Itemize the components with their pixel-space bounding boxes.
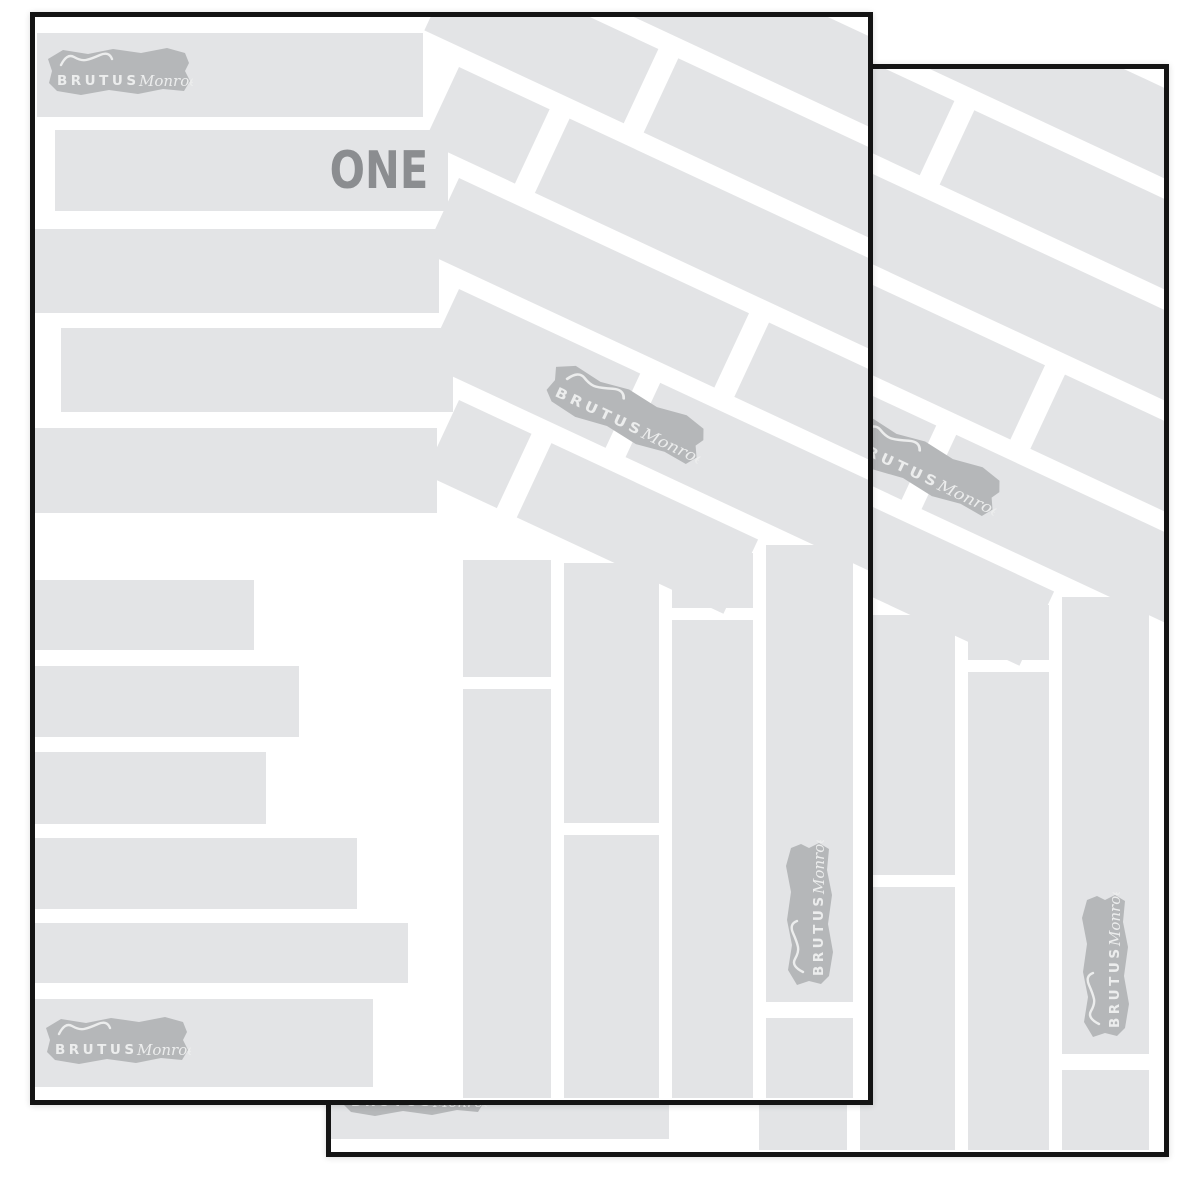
brick-joint-gap bbox=[514, 107, 571, 196]
vertical-plank bbox=[564, 835, 659, 1098]
brutus-monroe-logo: BRUTUSMonroe bbox=[781, 840, 837, 990]
paper-bar bbox=[35, 229, 439, 313]
brick-joint-gap bbox=[918, 98, 975, 187]
brutus-monroe-logo-art: BRUTUSMonroe bbox=[781, 840, 837, 990]
brick-joint-gap bbox=[496, 431, 553, 520]
vertical-plank bbox=[463, 689, 551, 1098]
vertical-plank bbox=[766, 1018, 853, 1098]
vertical-logo-area: BRUTUSMonroe bbox=[1077, 892, 1133, 1042]
brutus-monroe-logo: BRUTUSMonroe bbox=[1077, 892, 1133, 1042]
brutus-monroe-logo: BRUTUSMonroe bbox=[43, 43, 193, 99]
front-page-sheet: BRUTUSMonroeONEBRUTUSMonroeBRUTUSMonroeB… bbox=[30, 12, 873, 1105]
vertical-plank bbox=[860, 887, 955, 1150]
brick-joint-gap bbox=[1009, 363, 1066, 452]
paper-bar bbox=[35, 838, 357, 909]
brutus-monroe-logo: BRUTUSMonroe bbox=[41, 1012, 191, 1068]
vertical-plank bbox=[463, 560, 551, 677]
brutus-monroe-logo-art: BRUTUSMonroe bbox=[43, 43, 193, 99]
vertical-plank bbox=[1062, 1070, 1149, 1150]
brand-script-text: Monroe bbox=[138, 72, 193, 90]
paper-bar bbox=[35, 580, 254, 650]
brand-script-text: Monroe bbox=[136, 1041, 191, 1059]
brand-caps-text: BRUTUS bbox=[1107, 945, 1123, 1028]
brand-caps-text: BRUTUS bbox=[811, 893, 827, 976]
brutus-monroe-logo-art: BRUTUSMonroe bbox=[1077, 892, 1133, 1042]
paper-bar bbox=[35, 923, 408, 983]
vertical-logo-area: BRUTUSMonroe bbox=[781, 840, 837, 990]
brand-caps-text: BRUTUS bbox=[57, 73, 140, 89]
paper-bar bbox=[35, 666, 299, 737]
brand-caps-text: BRUTUS bbox=[55, 1042, 138, 1058]
brand-script-text: Monroe bbox=[1106, 892, 1124, 947]
vertical-plank bbox=[860, 615, 955, 875]
front-page-content: BRUTUSMonroeONEBRUTUSMonroeBRUTUSMonroeB… bbox=[35, 17, 868, 1100]
page-number-text: ONE bbox=[329, 145, 428, 197]
paper-bar bbox=[35, 428, 437, 513]
page-number-label: ONE bbox=[55, 130, 448, 211]
vertical-plank bbox=[672, 620, 753, 1098]
paper-bar bbox=[61, 328, 453, 412]
pattern-paper-mockup: BRUTUSMonroeONEBRUTUSMonroeBRUTUSMonroeB… bbox=[0, 0, 1184, 1192]
brand-script-text: Monroe bbox=[810, 840, 828, 895]
paper-bar bbox=[35, 752, 266, 824]
brick-joint-gap bbox=[622, 46, 679, 135]
vertical-plank bbox=[564, 563, 659, 823]
brutus-monroe-logo-art: BRUTUSMonroe bbox=[41, 1012, 191, 1068]
brick-joint-gap bbox=[713, 311, 770, 400]
vertical-plank bbox=[968, 672, 1049, 1150]
